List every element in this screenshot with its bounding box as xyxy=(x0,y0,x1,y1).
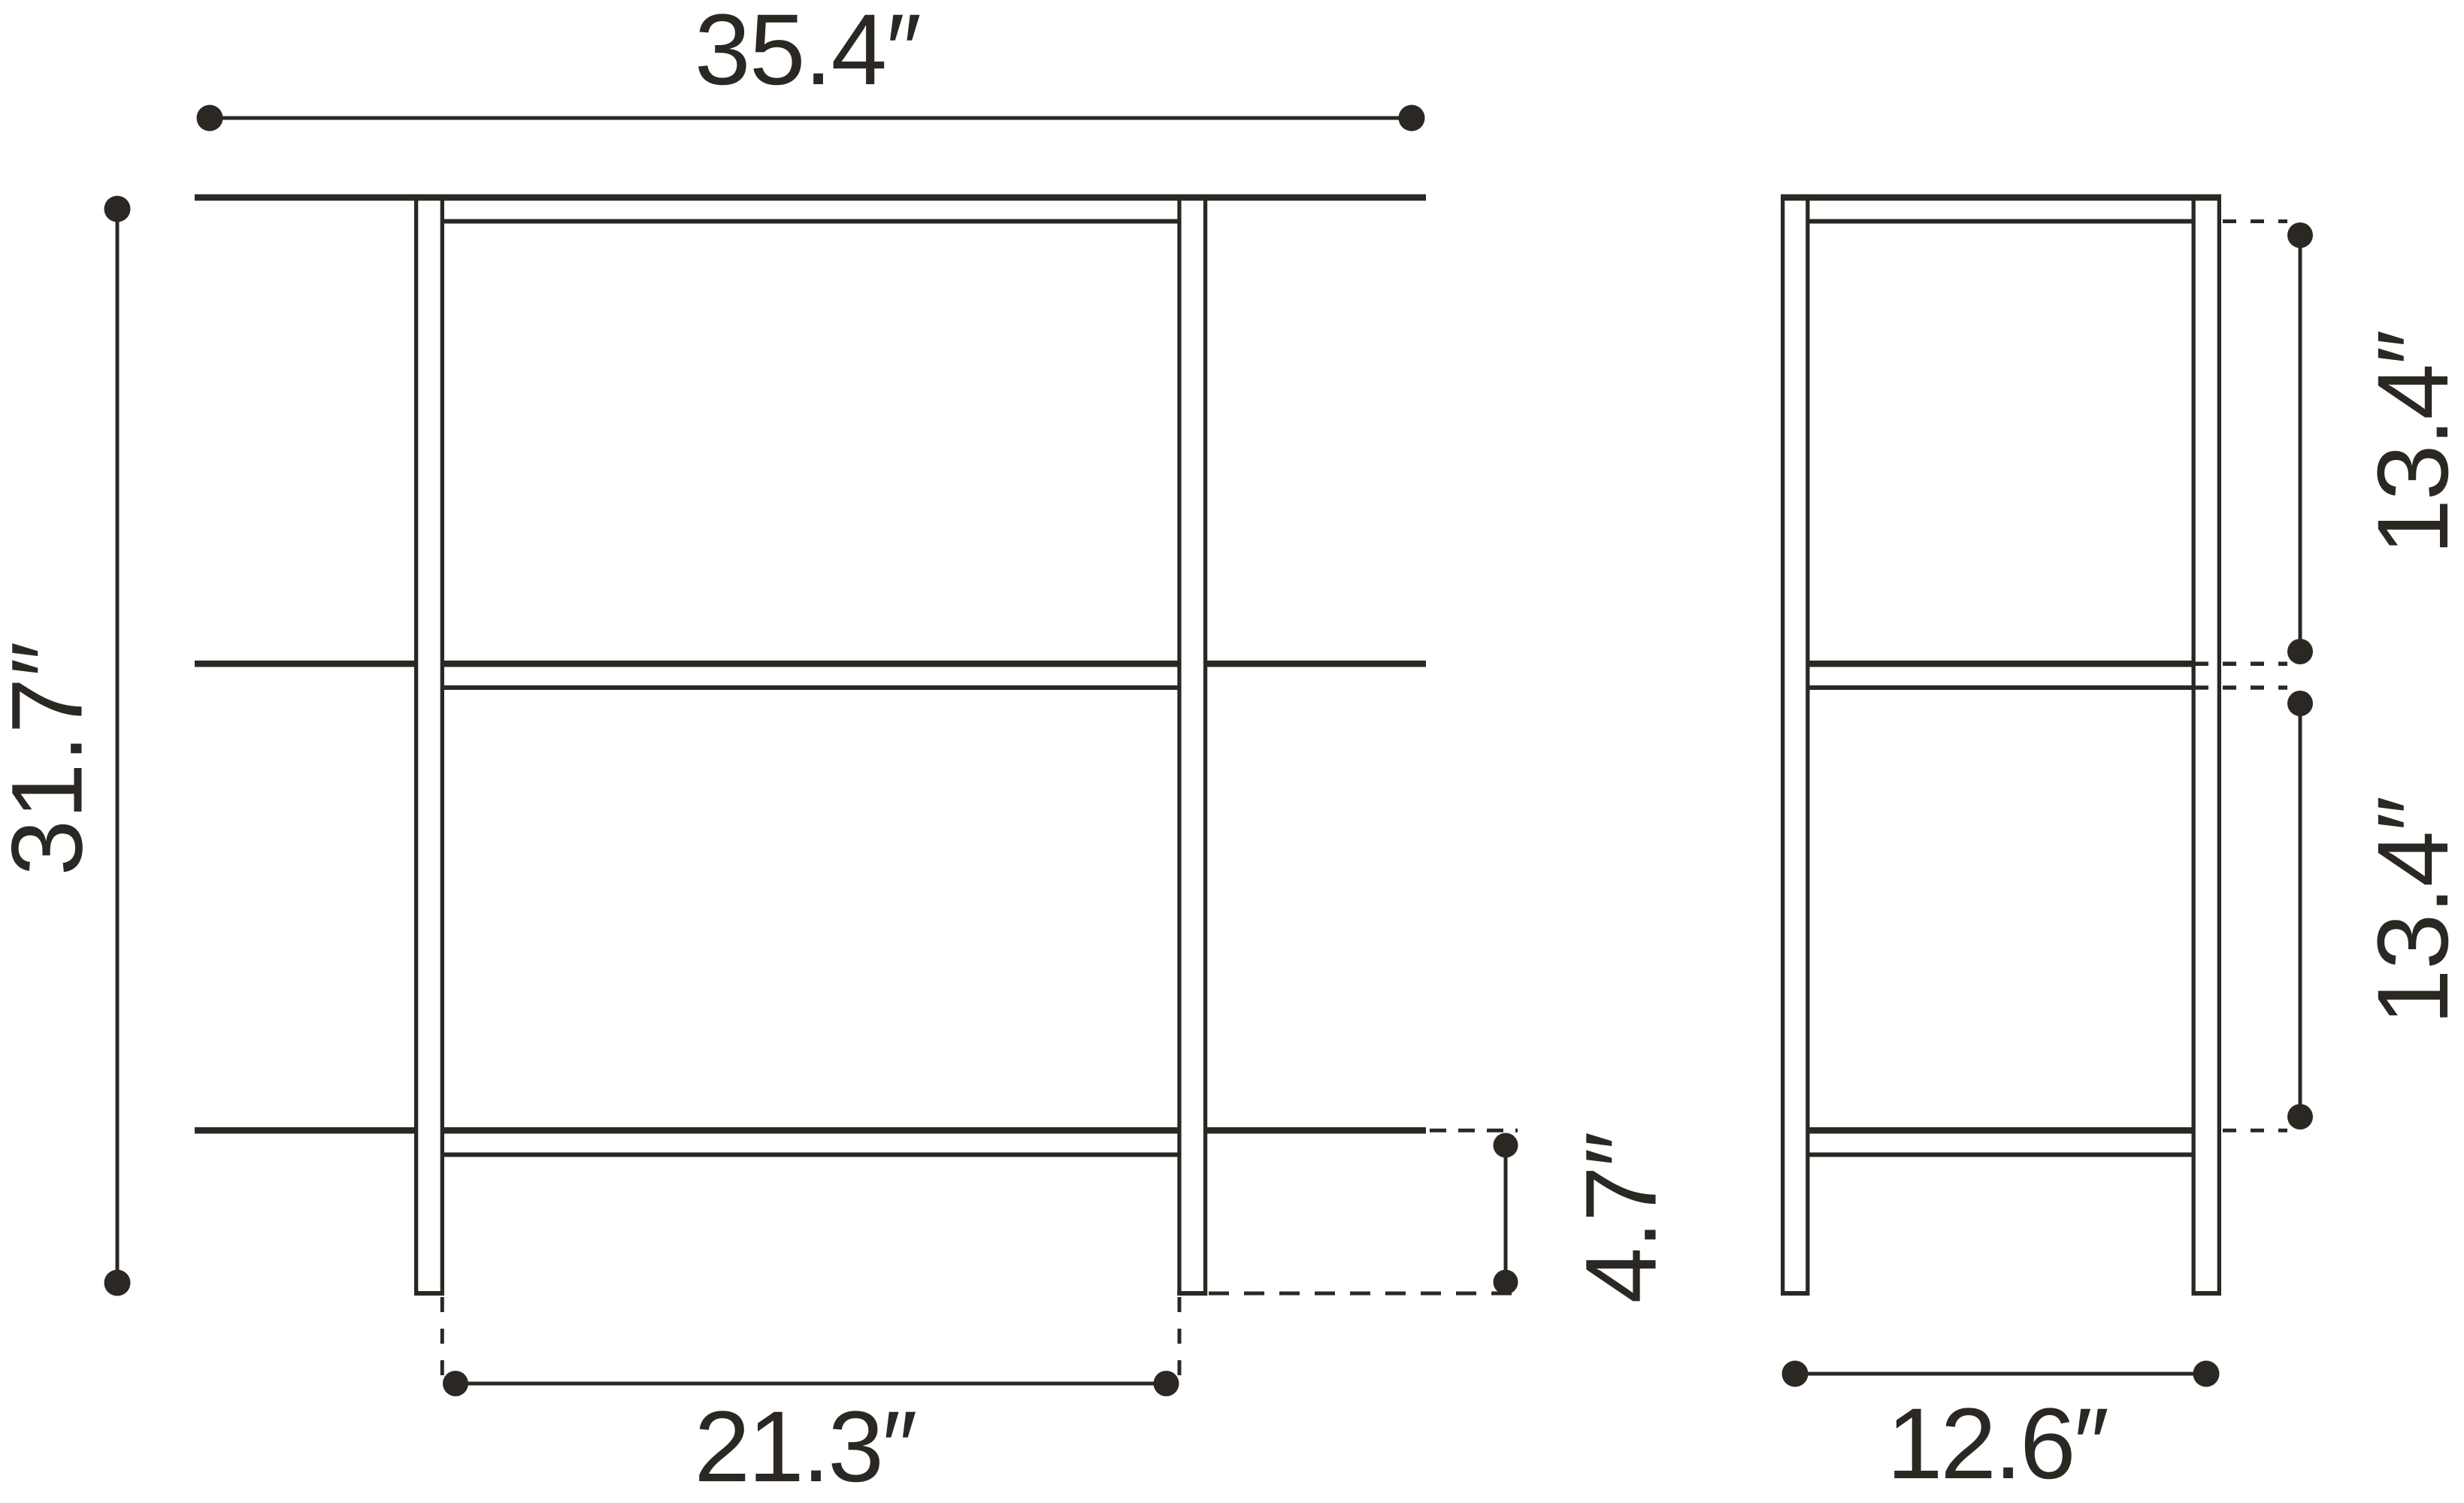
svg-text:35.4″: 35.4″ xyxy=(695,0,922,106)
svg-text:21.3″: 21.3″ xyxy=(695,1391,918,1503)
svg-text:13.4″: 13.4″ xyxy=(2357,796,2464,1025)
svg-text:13.4″: 13.4″ xyxy=(2357,330,2464,555)
svg-text:31.7″: 31.7″ xyxy=(0,642,104,876)
svg-text:12.6″: 12.6″ xyxy=(1887,1388,2109,1500)
svg-text:4.7″: 4.7″ xyxy=(1566,1132,1678,1304)
